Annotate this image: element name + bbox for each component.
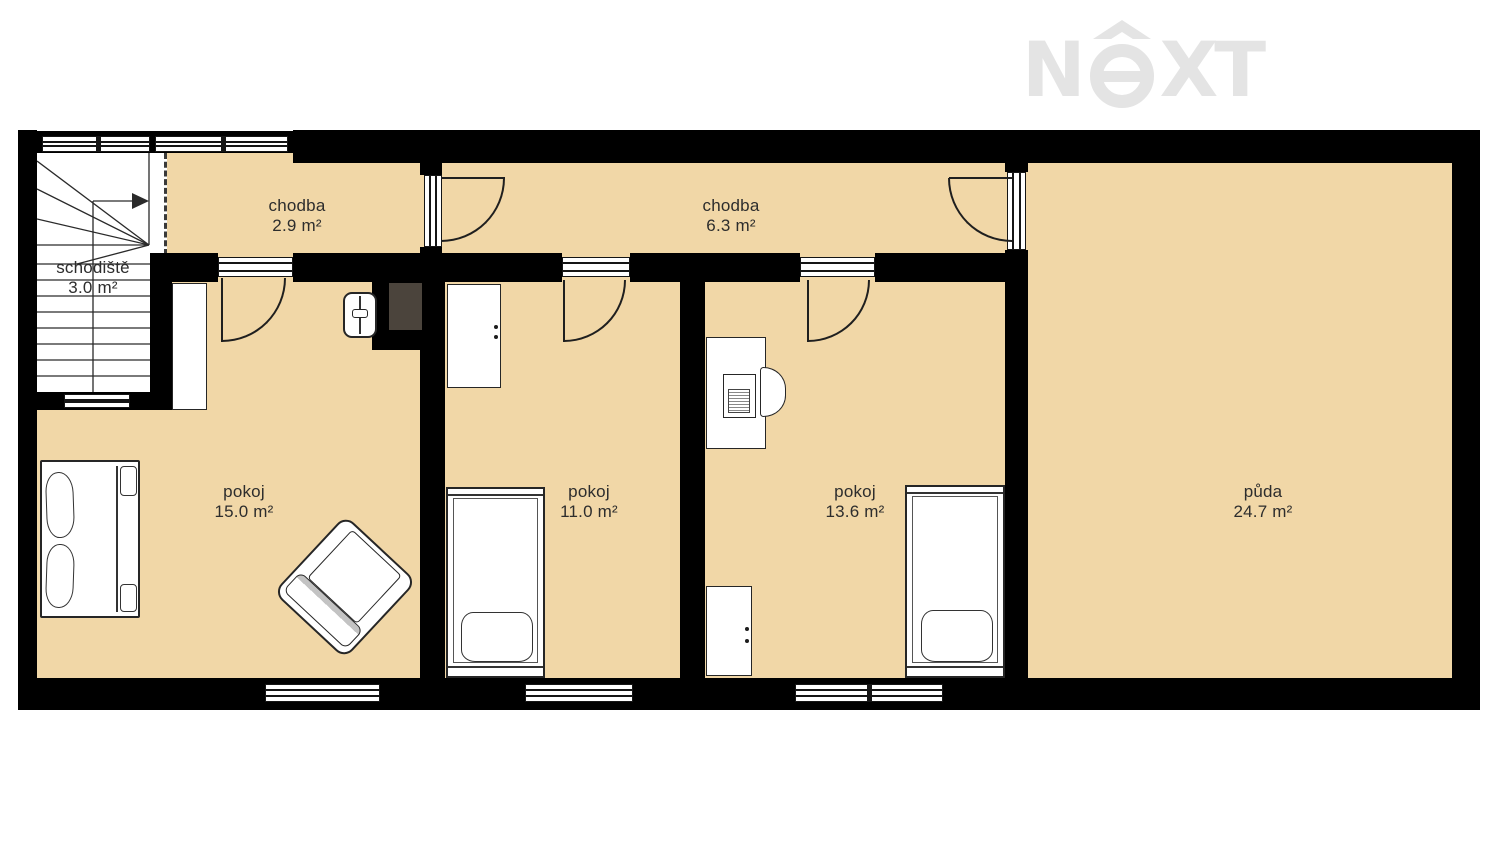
label-pokoj13: pokoj 13.6 m² [780, 482, 930, 522]
wall-hall-seg3 [630, 253, 800, 282]
room-area: 2.9 m² [222, 216, 372, 236]
window-top-1 [42, 136, 150, 152]
next-logo: N X T [1022, 34, 1262, 108]
logo-letter-x: X [1160, 34, 1215, 106]
cabinet-pokoj13 [706, 586, 752, 676]
room-name: schodiště [18, 258, 168, 278]
label-pokoj11: pokoj 11.0 m² [514, 482, 664, 522]
logo-letter-n: N [1022, 34, 1082, 106]
door-threshold-pokoj15 [218, 257, 293, 277]
wall-outer-right [1452, 130, 1480, 710]
wall-outer-bottom [18, 678, 1480, 710]
computer-icon [723, 374, 756, 418]
door-threshold-pokoj13 [800, 257, 875, 277]
wall-top-main [293, 130, 1480, 163]
wall-puda-top-stub [1005, 153, 1028, 172]
staircase-opening-dashed [150, 153, 167, 255]
label-schodiste: schodiště 3.0 m² [18, 258, 168, 298]
wall-hall-divider-top [420, 153, 442, 175]
label-chodba-small: chodba 2.9 m² [222, 196, 372, 236]
room-area: 13.6 m² [780, 502, 930, 522]
logo-letter-t: T [1214, 34, 1262, 106]
wardrobe-pokoj15 [172, 283, 207, 410]
logo-e-icon [1090, 44, 1154, 108]
room-area: 24.7 m² [1188, 502, 1338, 522]
chimney [389, 283, 422, 330]
double-bed [40, 460, 140, 618]
window-top-2 [155, 136, 288, 152]
window-stair-bottom [64, 394, 130, 408]
room-name: půda [1188, 482, 1338, 502]
room-name: chodba [656, 196, 806, 216]
window-pokoj15 [265, 684, 380, 702]
room-name: chodba [222, 196, 372, 216]
room-area: 11.0 m² [514, 502, 664, 522]
label-puda: půda 24.7 m² [1188, 482, 1338, 522]
room-area: 15.0 m² [169, 502, 319, 522]
wall-hall-seg4 [875, 253, 1005, 282]
label-chodba-large: chodba 6.3 m² [656, 196, 806, 236]
door-threshold-pokoj11 [562, 257, 630, 277]
floorplan-page: N X T [0, 0, 1500, 843]
wall-outer-left [18, 130, 37, 710]
room-name: pokoj [514, 482, 664, 502]
door-threshold-hall [424, 175, 442, 247]
room-name: pokoj [780, 482, 930, 502]
window-pokoj13 [795, 684, 943, 702]
window-pokoj11 [525, 684, 633, 702]
wall-pokoj11-pokoj13 [680, 263, 705, 678]
room-name: pokoj [169, 482, 319, 502]
label-pokoj15: pokoj 15.0 m² [169, 482, 319, 522]
wall-puda-left [1005, 250, 1028, 678]
wall-pokoj15-pokoj11 [420, 263, 445, 678]
room-area: 6.3 m² [656, 216, 806, 236]
desk [706, 337, 766, 449]
washbasin [343, 292, 377, 338]
room-area: 3.0 m² [18, 278, 168, 298]
wardrobe-pokoj11 [447, 284, 501, 388]
